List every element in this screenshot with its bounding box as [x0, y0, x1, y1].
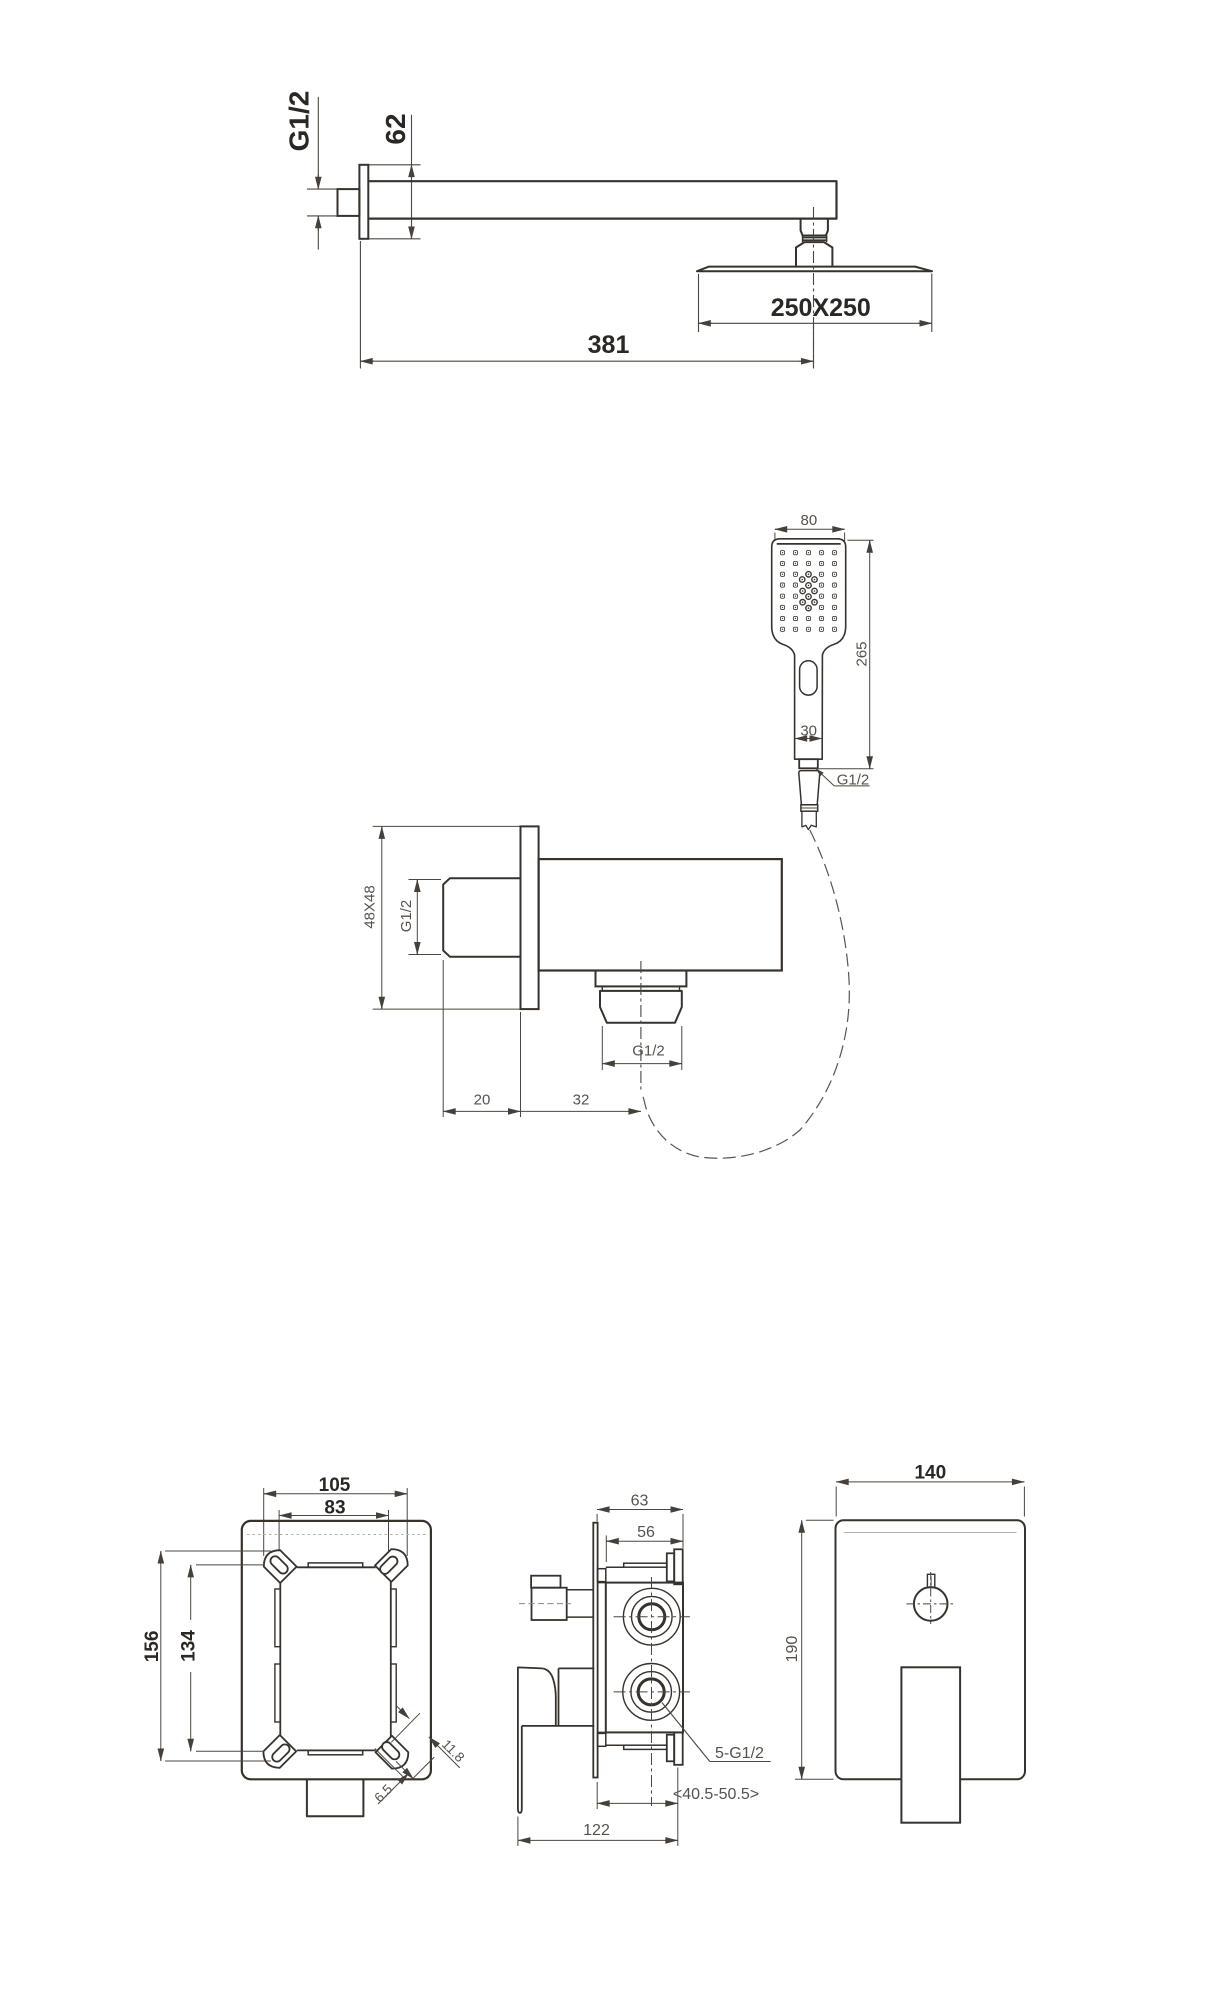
svg-text:80: 80	[801, 512, 818, 529]
svg-text:190: 190	[784, 1636, 801, 1663]
svg-text:5-G1/2: 5-G1/2	[715, 1745, 764, 1762]
svg-text:122: 122	[583, 1822, 610, 1839]
svg-text:48X48: 48X48	[361, 885, 378, 928]
svg-text:G1/2: G1/2	[283, 91, 314, 152]
svg-text:62: 62	[380, 113, 411, 144]
svg-text:G1/2: G1/2	[837, 772, 870, 789]
svg-text:56: 56	[637, 1524, 655, 1541]
svg-text:156: 156	[142, 1631, 163, 1663]
svg-text:G1/2: G1/2	[632, 1042, 665, 1059]
svg-text:134: 134	[179, 1630, 200, 1662]
svg-text:<40.5-50.5>: <40.5-50.5>	[673, 1786, 759, 1803]
svg-text:140: 140	[914, 1462, 946, 1483]
svg-text:250X250: 250X250	[771, 294, 871, 322]
svg-text:105: 105	[319, 1475, 351, 1496]
svg-text:265: 265	[853, 641, 870, 666]
svg-text:G1/2: G1/2	[398, 900, 415, 933]
svg-text:63: 63	[631, 1492, 649, 1509]
svg-text:20: 20	[474, 1091, 491, 1108]
svg-text:30: 30	[800, 722, 817, 739]
svg-text:32: 32	[573, 1091, 590, 1108]
svg-text:381: 381	[588, 331, 630, 359]
